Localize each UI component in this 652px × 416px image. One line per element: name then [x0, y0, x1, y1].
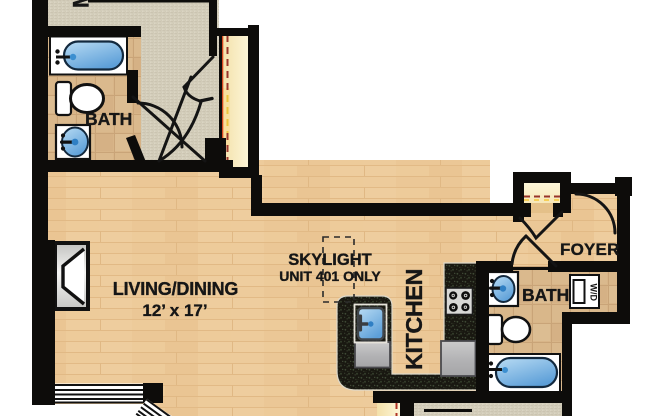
svg-text:BATH: BATH — [85, 109, 132, 129]
svg-text:LIVING/DINING: LIVING/DINING — [113, 279, 238, 299]
svg-text:12’ x 17’: 12’ x 17’ — [142, 301, 207, 320]
svg-text:M: M — [69, 0, 94, 8]
svg-text:FOYER: FOYER — [560, 240, 620, 259]
svg-text:KITCHEN: KITCHEN — [401, 269, 427, 370]
svg-text:UNIT 401 ONLY: UNIT 401 ONLY — [279, 268, 381, 284]
svg-text:W/D: W/D — [589, 284, 599, 302]
svg-text:BATH: BATH — [522, 285, 569, 305]
svg-text:SKYLIGHT: SKYLIGHT — [288, 251, 371, 269]
